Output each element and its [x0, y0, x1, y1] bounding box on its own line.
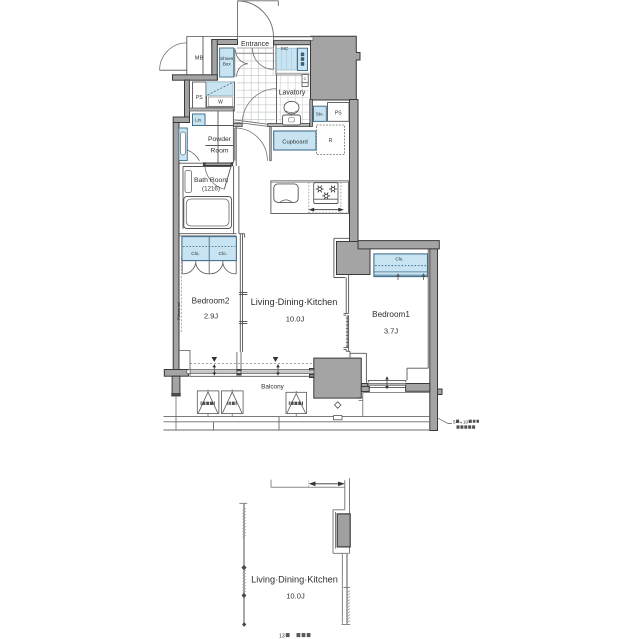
svg-text:SIC: SIC [281, 46, 290, 52]
svg-text:2.9J: 2.9J [204, 312, 219, 321]
svg-text:5: 5 [453, 419, 456, 424]
svg-text:MB: MB [195, 56, 204, 62]
svg-text:Clo.: Clo. [191, 251, 200, 257]
svg-text:W: W [218, 100, 223, 106]
svg-text:Clo.: Clo. [395, 256, 403, 261]
svg-text:PS: PS [196, 95, 203, 101]
svg-text:13: 13 [279, 633, 285, 639]
svg-text:Entrance: Entrance [241, 41, 269, 48]
svg-text:Bedroom2: Bedroom2 [192, 297, 230, 306]
svg-text:Box: Box [223, 61, 232, 66]
svg-text:Lavatory: Lavatory [279, 90, 306, 97]
svg-text:Living·Dining·Kitchen: Living·Dining·Kitchen [251, 297, 338, 307]
svg-text:Lin.: Lin. [195, 118, 202, 123]
svg-text:10: 10 [463, 419, 469, 424]
svg-text:C: C [304, 77, 307, 81]
svg-text:10.0J: 10.0J [286, 592, 305, 601]
svg-text:Room: Room [210, 148, 228, 155]
svg-text:Sto.: Sto. [316, 112, 324, 117]
svg-text:Bath Room: Bath Room [194, 177, 228, 184]
svg-text:Cupboard: Cupboard [282, 139, 307, 145]
svg-text:10.0J: 10.0J [286, 315, 305, 324]
svg-text:Bedroom1: Bedroom1 [372, 310, 410, 319]
svg-text:Balcony: Balcony [261, 384, 285, 391]
svg-text:PS: PS [335, 111, 342, 117]
svg-text:R: R [329, 138, 333, 144]
svg-text:Living·Dining·Kitchen: Living·Dining·Kitchen [251, 575, 338, 585]
svg-text:Powder: Powder [208, 136, 232, 143]
svg-text:Clo.: Clo. [219, 251, 228, 257]
svg-text:Picture rail: Picture rail [177, 302, 181, 320]
svg-text:(1216): (1216) [202, 185, 220, 192]
svg-text:Shoes: Shoes [220, 56, 234, 61]
svg-text:3.7J: 3.7J [384, 327, 399, 336]
